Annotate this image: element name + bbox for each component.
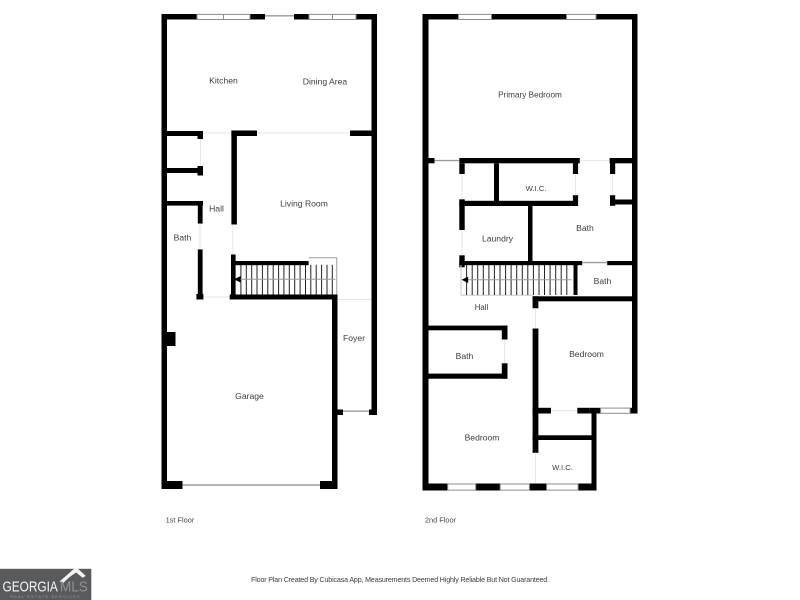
svg-text:Bath: Bath [594,276,612,286]
svg-text:Living Room: Living Room [280,199,328,209]
svg-text:Bath: Bath [576,223,594,233]
svg-text:Bedroom: Bedroom [569,349,604,359]
svg-text:Floor Plan Created By Cubicasa: Floor Plan Created By Cubicasa App, Meas… [251,576,549,584]
svg-text:Hall: Hall [209,204,224,214]
svg-text:Bath: Bath [456,351,474,361]
svg-text:W.I.C.: W.I.C. [552,463,573,472]
svg-text:Bedroom: Bedroom [465,433,500,443]
svg-text:Dining Area: Dining Area [303,77,348,87]
svg-text:Foyer: Foyer [343,333,365,343]
svg-text:Bath: Bath [174,233,192,243]
svg-text:Laundry: Laundry [482,234,514,244]
svg-text:W.I.C.: W.I.C. [526,184,547,193]
svg-text:Hall: Hall [475,303,489,312]
svg-text:REAL ESTATE SERVICES: REAL ESTATE SERVICES [10,594,81,599]
svg-text:2nd Floor: 2nd Floor [425,516,457,525]
svg-text:GEORGIA: GEORGIA [2,578,58,595]
svg-text:Kitchen: Kitchen [209,76,238,86]
svg-text:Primary Bedroom: Primary Bedroom [498,91,562,100]
svg-text:MLS: MLS [60,579,88,596]
svg-text:1st Floor: 1st Floor [166,516,195,525]
svg-text:Garage: Garage [235,391,264,401]
